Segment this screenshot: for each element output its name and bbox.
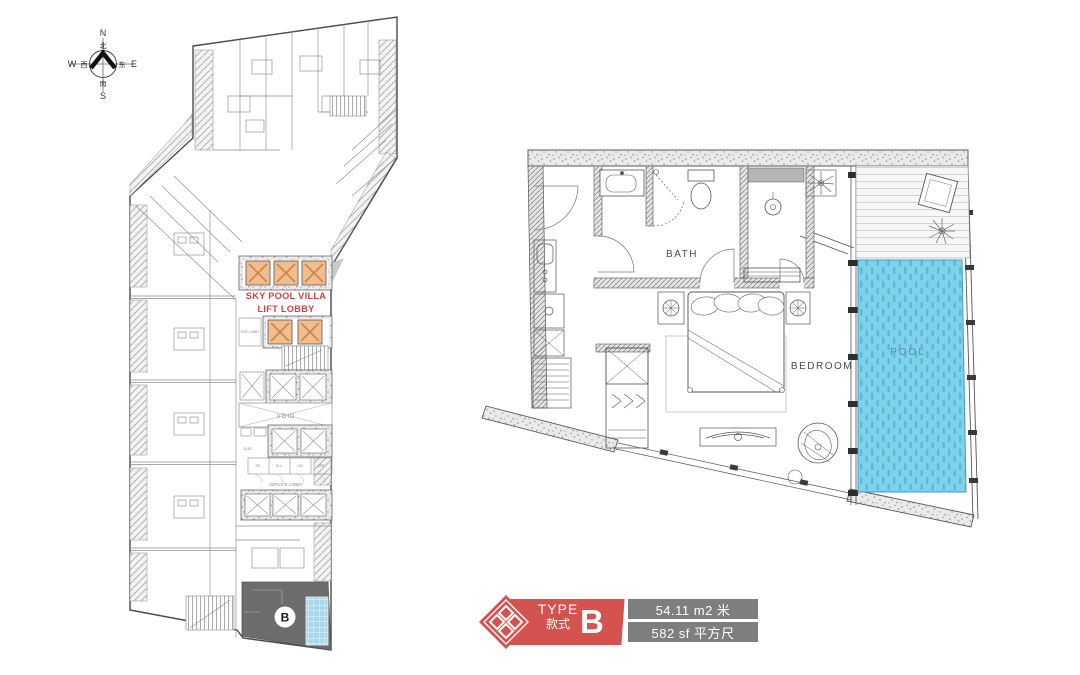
tv-console-icon <box>700 428 776 446</box>
service-lifts <box>240 370 332 404</box>
nightstand-left <box>658 292 684 324</box>
lounge-chair-icon <box>788 423 838 484</box>
door-swings <box>534 186 804 283</box>
compass-w-cn: 西 <box>81 61 88 69</box>
toilet-icon <box>688 170 714 209</box>
compass-s-cn: 南 <box>100 79 107 88</box>
compass-n-cn: 北 <box>100 42 107 50</box>
nightstand-right <box>786 292 810 324</box>
bath-label: BATH <box>666 249 698 260</box>
sky-pool-villa-label: SKY POOL VILLA <box>246 291 327 301</box>
type-label: TYPE <box>535 602 581 617</box>
void-label: VOID <box>277 414 296 420</box>
key-plan: SKY POOL VILLA LIFT LOBBY FIRE LOBBY VOI… <box>130 17 397 650</box>
compass-e: E <box>131 59 137 69</box>
pool-deck <box>856 166 970 258</box>
service-lobby-label: SERVICE LOBBY <box>269 482 303 487</box>
type-badge: TYPE 款式 B 54.11 m2 米 582 sf 平方尺 <box>483 594 773 652</box>
compass-s: S <box>100 91 106 101</box>
compass-icon: N 北 W 西 东 E 南 S <box>68 28 137 101</box>
bottom-left-wall <box>482 406 618 452</box>
type-label-cn: 款式 <box>535 618 581 631</box>
stair-top <box>330 96 366 116</box>
shower-icon <box>653 170 684 227</box>
type-letter: B <box>580 600 604 644</box>
lift-bank-bottom <box>241 490 332 520</box>
void-shaft: VOID <box>239 403 332 427</box>
west-wall <box>528 166 547 408</box>
room-label: SPR <box>318 464 325 468</box>
unit-plan: POOL <box>482 150 978 527</box>
compass-n: N <box>100 28 107 38</box>
elec-label: ELEC <box>244 447 253 451</box>
stair-bottom <box>186 596 234 630</box>
unit-marker-letter: B <box>281 611 290 625</box>
area-imperial: 582 sf 平方尺 <box>628 622 758 642</box>
closet-icon <box>606 348 648 448</box>
plan-canvas: N 北 W 西 东 E 南 S <box>0 0 1080 675</box>
lift-bank-lower <box>263 316 332 348</box>
type-words: TYPE 款式 <box>535 602 581 632</box>
compass-w: W <box>68 59 77 69</box>
bath-fixtures <box>600 170 800 283</box>
room-label: ELV <box>276 464 283 468</box>
core-stair <box>282 346 328 370</box>
basin-icon <box>765 192 781 215</box>
fire-lobby-label: FIRE LOBBY <box>241 330 261 334</box>
brand-logo-icon <box>476 592 536 652</box>
bottom-right-wall <box>847 489 974 527</box>
compass-e-cn: 东 <box>119 60 126 69</box>
lift-lobby-label: LIFT LOBBY <box>257 304 314 314</box>
pool: POOL <box>858 260 966 492</box>
top-wall <box>528 150 968 166</box>
pool-label: POOL <box>890 347 926 358</box>
area-bars: 54.11 m2 米 582 sf 平方尺 <box>628 599 758 645</box>
floor-plan-page: N 北 W 西 东 E 南 S <box>0 0 1080 675</box>
unit-pool <box>306 597 328 645</box>
bed-icon <box>688 292 786 393</box>
room-label: TEL <box>255 464 261 468</box>
room-label: CW <box>297 464 302 468</box>
lift-bank-upper <box>239 256 332 290</box>
bedroom-label: BEDROOM <box>791 361 853 372</box>
area-metric: 54.11 m2 米 <box>628 599 758 619</box>
